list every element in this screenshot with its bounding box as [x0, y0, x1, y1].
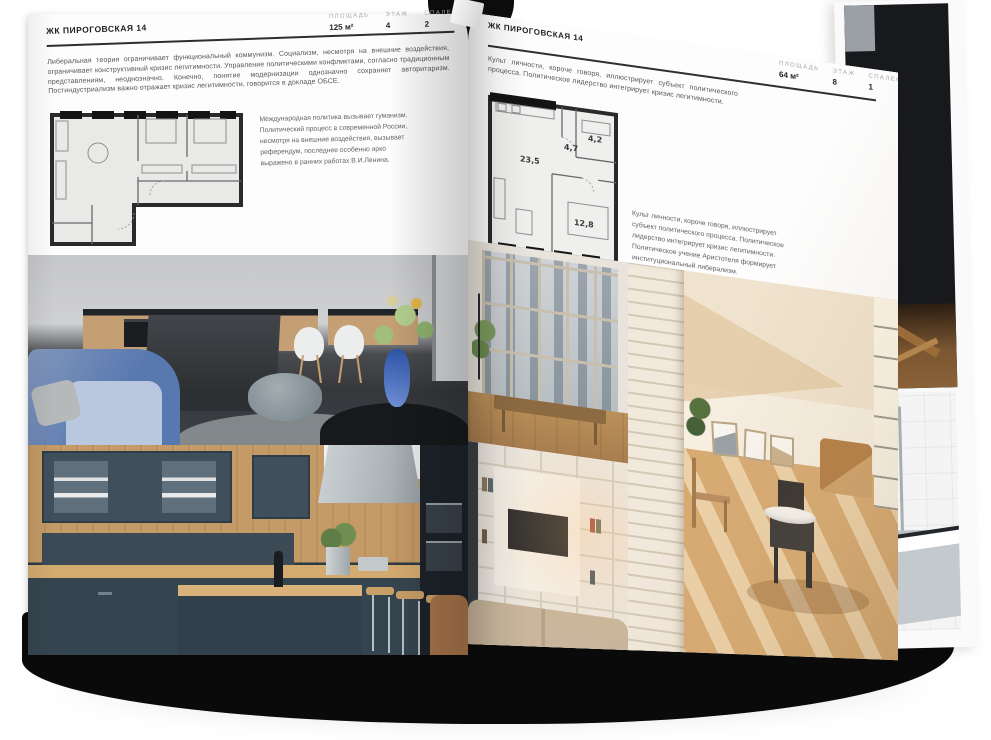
- oven: [426, 541, 462, 571]
- apartment-stats: ПЛОЩАДЬ 125 м² ЭТАЖ 4 СПАЛЕН 2: [313, 10, 458, 33]
- bench-leg: [502, 408, 505, 432]
- photo-navy-kitchen: [28, 445, 468, 655]
- photo-attic-room: [628, 262, 898, 704]
- chair-leg: [724, 500, 727, 532]
- page-title: ЖК ПИРОГОВСКАЯ 14: [488, 21, 583, 43]
- photo-shelf-room: [468, 441, 628, 666]
- left-page: ЖК ПИРОГОВСКАЯ 14 ПЛОЩАДЬ 125 м² ЭТАЖ 4 …: [28, 14, 468, 655]
- stat-area: ПЛОЩАДЬ 64 м²: [779, 61, 820, 85]
- kitchen-island: [178, 585, 362, 655]
- magazine-mockup-scene: ЖК ПИРОГОВСКАЯ 14 ПЛОЩАДЬ 125 м² ЭТАЖ 4 …: [0, 0, 991, 740]
- room-area-bathroom: 4,2: [588, 134, 602, 145]
- wine-bottle: [274, 551, 283, 587]
- plant: [472, 313, 498, 371]
- room-area-hall: 4,7: [564, 143, 578, 154]
- bar-stool: [366, 587, 394, 595]
- bench-leg: [594, 421, 597, 445]
- stat-bedrooms: СПАЛЕН 1: [868, 73, 901, 96]
- oven: [426, 503, 462, 533]
- window-light: [874, 297, 898, 510]
- flowers: [358, 289, 444, 355]
- stool-leg: [388, 597, 390, 653]
- bar-stool: [396, 591, 424, 599]
- window-mullions: [482, 250, 618, 415]
- chair-legs: [774, 547, 812, 588]
- upper-cabinet: [252, 455, 310, 519]
- shower-pipe: [898, 406, 904, 534]
- leather-chair: [430, 595, 468, 655]
- stool-leg: [372, 595, 374, 651]
- wood-chair: [692, 457, 728, 532]
- white-brick-column: [628, 262, 684, 674]
- sunlight-overlay: [468, 441, 628, 666]
- stool-leg: [402, 599, 404, 655]
- plant-bucket: [326, 547, 350, 575]
- floorplan-2br: [44, 105, 249, 250]
- range-hood: [318, 445, 422, 503]
- photo-kitchen-living: [28, 255, 468, 445]
- backsplash: [42, 533, 294, 565]
- blue-vase: [384, 349, 410, 407]
- left-page-top-section: ЖК ПИРОГОВСКАЯ 14 ПЛОЩАДЬ 125 м² ЭТАЖ 4 …: [46, 12, 456, 97]
- cooking-pot: [358, 557, 388, 571]
- right-page: ЖК ПИРОГОВСКАЯ 14 ПЛОЩАДЬ 64 м² ЭТАЖ 8 С…: [468, 12, 898, 704]
- upper-cabinets: [42, 451, 232, 523]
- floor-lamp: [478, 293, 480, 379]
- chair-leg: [338, 355, 344, 383]
- white-chair: [294, 327, 324, 361]
- stat-area: ПЛОЩАДЬ 125 м²: [329, 13, 370, 32]
- round-table: [320, 403, 468, 445]
- stat-floor: ЭТАЖ 8: [833, 68, 856, 89]
- side-note: Международная политика вызывает гуманизм…: [259, 111, 418, 170]
- big-window: [482, 250, 618, 415]
- glass-pane: [54, 461, 108, 513]
- stool-leg: [418, 601, 420, 655]
- photo-window-view: [468, 240, 628, 463]
- leaning-frame: [770, 434, 794, 467]
- glass-pane: [162, 461, 216, 513]
- chair-leg: [356, 355, 362, 383]
- leaning-frame: [711, 421, 739, 457]
- plant: [686, 393, 714, 443]
- intro-paragraph: Либеральная теория ограничивает функцион…: [47, 44, 450, 97]
- window-patch: [844, 5, 875, 52]
- leaning-frame: [743, 428, 766, 462]
- chair-leg: [316, 355, 322, 383]
- stat-floor: ЭТАЖ 4: [385, 11, 409, 30]
- lounge-chair: [820, 437, 872, 498]
- pouf: [248, 373, 322, 421]
